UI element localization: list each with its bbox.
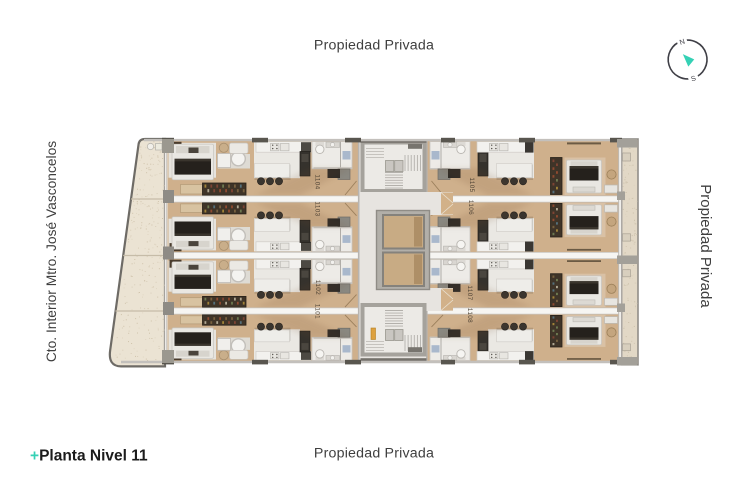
svg-text:1108: 1108 xyxy=(466,308,473,323)
svg-text:1105: 1105 xyxy=(468,177,475,192)
svg-text:+Planta Nivel 11: +Planta Nivel 11 xyxy=(30,448,148,465)
svg-text:1106: 1106 xyxy=(467,200,474,215)
svg-text:1103: 1103 xyxy=(313,201,320,216)
svg-text:1104: 1104 xyxy=(313,174,320,189)
svg-text:1102: 1102 xyxy=(314,280,321,295)
svg-text:Propiedad Privada: Propiedad Privada xyxy=(314,38,434,54)
svg-text:Cto. Interior Mtro. José Vasco: Cto. Interior Mtro. José Vasconcelos xyxy=(44,141,59,362)
svg-text:1101: 1101 xyxy=(313,304,320,319)
svg-text:1107: 1107 xyxy=(466,285,473,300)
svg-text:Propiedad Privada: Propiedad Privada xyxy=(314,446,434,462)
svg-text:Propiedad Privada: Propiedad Privada xyxy=(697,184,714,308)
